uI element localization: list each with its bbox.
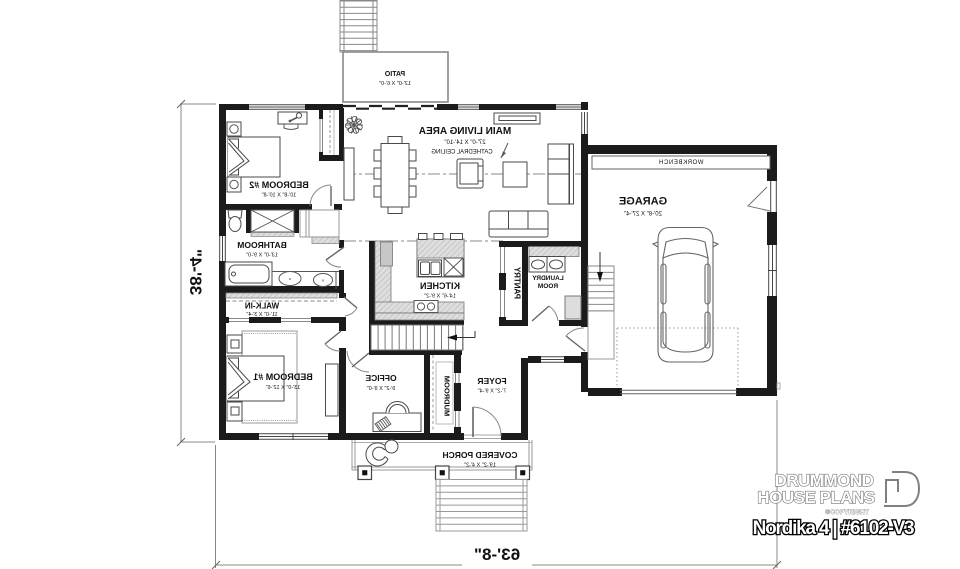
svg-text:COVERED PORCH: COVERED PORCH [442,450,517,460]
svg-text:FOYER: FOYER [477,376,506,386]
svg-text:OFFICE: OFFICE [365,373,396,383]
svg-text:PANTRY: PANTRY [513,266,522,299]
svg-text:9'-2" X 9'-0": 9'-2" X 9'-0" [367,386,396,392]
svg-text:WALK-IN: WALK-IN [245,302,279,311]
svg-text:BATHROOM: BATHROOM [237,240,286,250]
svg-text:10'-8" X 10'-8": 10'-8" X 10'-8" [262,193,297,199]
svg-text:63'-8": 63'-8" [474,545,520,564]
svg-text:LAUNDRY: LAUNDRY [532,275,564,282]
svg-text:38'-4": 38'-4" [186,249,205,295]
svg-text:14'-6" X 9'-2": 14'-6" X 9'-2" [424,294,456,300]
svg-text:11'-0" X 3'-4": 11'-0" X 3'-4" [246,312,277,318]
svg-text:GARAGE: GARAGE [619,196,667,208]
svg-text:12'-0" X 6'-0": 12'-0" X 6'-0" [379,81,411,87]
svg-text:19'-2" X 4'-2": 19'-2" X 4'-2" [464,463,496,469]
svg-text:ROOM: ROOM [538,283,558,290]
svg-text:Nordika 4 | #6102-V3: Nordika 4 | #6102-V3 [753,518,914,539]
svg-text:WORKBENCH: WORKBENCH [658,160,703,166]
svg-text:13'-0" X 9'-0": 13'-0" X 9'-0" [246,253,278,259]
svg-text:PATIO: PATIO [384,71,405,78]
svg-text:CATHEDRAL CEILING: CATHEDRAL CEILING [431,150,493,156]
svg-text:HOUSE PLANS: HOUSE PLANS [757,488,874,507]
svg-text:©COPYRIGHT: ©COPYRIGHT [825,508,868,516]
svg-text:13'-0" X 12'-6": 13'-0" X 12'-6" [266,385,301,391]
svg-text:7'-2" X 9'-4": 7'-2" X 9'-4" [478,389,507,395]
svg-text:MAIN LIVING AREA: MAIN LIVING AREA [419,126,511,137]
svg-text:KITCHEN: KITCHEN [420,281,460,291]
svg-text:BEDROOM #1: BEDROOM #1 [253,372,313,382]
svg-text:20'-8" X 27'-4": 20'-8" X 27'-4" [624,212,662,218]
svg-text:27'-0" X 14'-10": 27'-0" X 14'-10" [444,140,485,146]
svg-text:BEDROOM #2: BEDROOM #2 [249,180,309,190]
svg-text:MUDROOM: MUDROOM [443,376,452,416]
